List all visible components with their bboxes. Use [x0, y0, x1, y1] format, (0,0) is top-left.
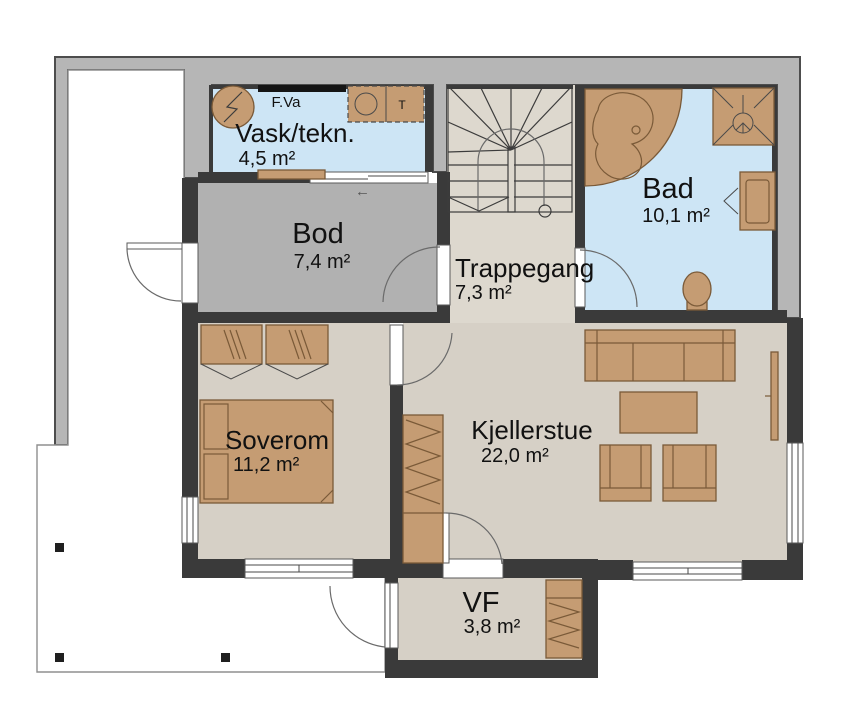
wall-west — [182, 178, 198, 243]
floor-plan: ← — [0, 0, 844, 720]
room-vf-name: VF — [462, 587, 499, 619]
coat-closet — [546, 580, 582, 658]
room-bad-name: Bad — [642, 173, 694, 205]
window-soverom-west — [182, 497, 198, 543]
wall-south — [503, 559, 598, 578]
room-kjellerstue-name: Kjellerstue — [471, 415, 592, 445]
room-bod-name: Bod — [292, 218, 344, 250]
wall-west — [182, 303, 198, 497]
sliding-door-arrow: ← — [355, 183, 370, 200]
room-kjellerstue-area: 22,0 m² — [481, 445, 549, 467]
wall-east — [787, 543, 803, 580]
deck-post — [55, 543, 64, 552]
wall-bod-soverom — [182, 312, 450, 323]
sofa — [585, 330, 735, 381]
wall-vask-west — [209, 85, 213, 172]
room-trappegang-area: 7,3 m² — [455, 282, 512, 304]
deck-post — [221, 653, 230, 662]
room-trappegang-name: Trappegang — [455, 253, 594, 283]
wall-trappegang-bad — [575, 85, 585, 248]
shower-icon — [713, 88, 774, 145]
wall-south — [182, 559, 245, 578]
window-kjellerstue-east — [787, 443, 803, 543]
water-manifold-icon — [258, 85, 346, 92]
wall-vf-west — [385, 577, 398, 583]
coffee-table — [620, 392, 697, 433]
room-vf-area: 3,8 m² — [464, 616, 521, 638]
wall-vask-east — [425, 85, 433, 172]
armchair — [663, 445, 716, 501]
washer-dryer-icon — [348, 86, 424, 122]
room-bod-area: 7,4 m² — [294, 251, 351, 273]
bench — [258, 170, 325, 179]
wall-bad-kjellerstue — [575, 310, 787, 323]
armchair — [600, 445, 651, 501]
room-soverom-name: Soverom — [225, 425, 329, 455]
floor-plan-page: ← — [0, 0, 844, 720]
room-vask-area: 4,5 m² — [239, 148, 296, 170]
wall-bod-trappegang — [437, 305, 450, 323]
room-vask-name: Vask/tekn. — [235, 118, 354, 148]
room-soverom-area: 11,2 m² — [233, 454, 300, 476]
deck-post — [55, 653, 64, 662]
wall-soverom-kjellerstue — [390, 385, 403, 560]
dryer-label: T — [398, 98, 406, 112]
shelf-wardrobe — [403, 415, 443, 563]
window-soverom-south — [245, 559, 353, 578]
window-kjellerstue-south — [633, 562, 742, 580]
wall-vf-south — [385, 660, 598, 678]
sliding-door-vask — [310, 172, 428, 183]
room-bad-area: 10,1 m² — [642, 205, 710, 227]
manifold-label: F.Va — [272, 94, 302, 111]
toilet-icon — [683, 272, 711, 310]
wall-south-kjellerstue — [598, 560, 633, 580]
wall-east — [787, 318, 803, 443]
